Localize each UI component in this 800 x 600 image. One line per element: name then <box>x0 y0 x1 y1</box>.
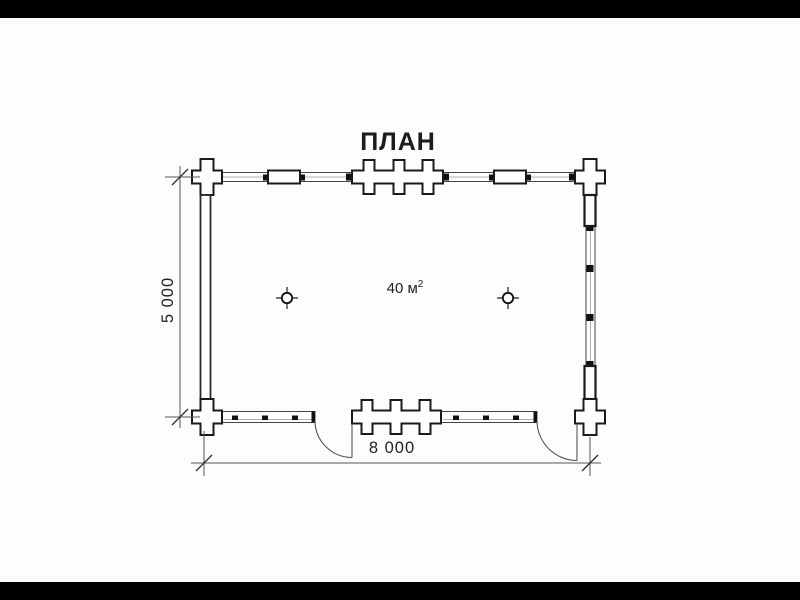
panel-nub <box>483 416 489 421</box>
floor-plan-drawing <box>0 0 800 600</box>
left-wall <box>201 195 211 399</box>
letterbox-bottom <box>0 582 800 600</box>
log-joint-cluster-top <box>352 160 443 194</box>
right-wall <box>585 195 596 399</box>
door-left <box>315 421 352 458</box>
panel-nub <box>292 416 298 421</box>
post-marker-left <box>276 287 298 309</box>
post-marker-right <box>497 287 519 309</box>
left-wall-body <box>201 195 211 399</box>
room-area-value: 40 м <box>387 280 418 297</box>
door-swing-arc-right <box>537 421 577 461</box>
plan-title: ПЛАН <box>298 128 498 157</box>
panel-nub <box>513 416 519 421</box>
room-area-label: 40 м2 <box>355 279 455 299</box>
door-right <box>537 421 577 461</box>
right-wall-bottom-segment <box>585 366 596 399</box>
bottom-wall <box>192 399 605 435</box>
post-circle <box>503 293 513 303</box>
dimension-width-label: 8 000 <box>352 439 432 458</box>
right-wall-top-segment <box>585 195 596 226</box>
window-end-nub <box>587 361 594 365</box>
window-symbol-top-left <box>268 171 300 184</box>
panel-nub <box>453 416 459 421</box>
room-area-superscript: 2 <box>418 279 424 290</box>
panel-nub <box>262 416 268 421</box>
panel-nub <box>232 416 238 421</box>
post-circle <box>282 293 292 303</box>
window-mullion-nub <box>587 265 594 272</box>
log-corner-bottom-right <box>575 399 605 435</box>
top-wall <box>192 159 605 195</box>
window-symbol-top-right <box>494 171 526 184</box>
drawing-canvas: ПЛАН <box>0 0 800 600</box>
dimension-height-label: 5 000 <box>159 270 179 330</box>
letterbox-top <box>0 0 800 18</box>
window-end-nub <box>587 227 594 231</box>
log-corner-top-right <box>575 159 605 195</box>
log-joint-cluster-bottom <box>352 400 441 434</box>
window-mullion-nub <box>587 314 594 321</box>
door-swing-arc-left <box>315 421 352 458</box>
